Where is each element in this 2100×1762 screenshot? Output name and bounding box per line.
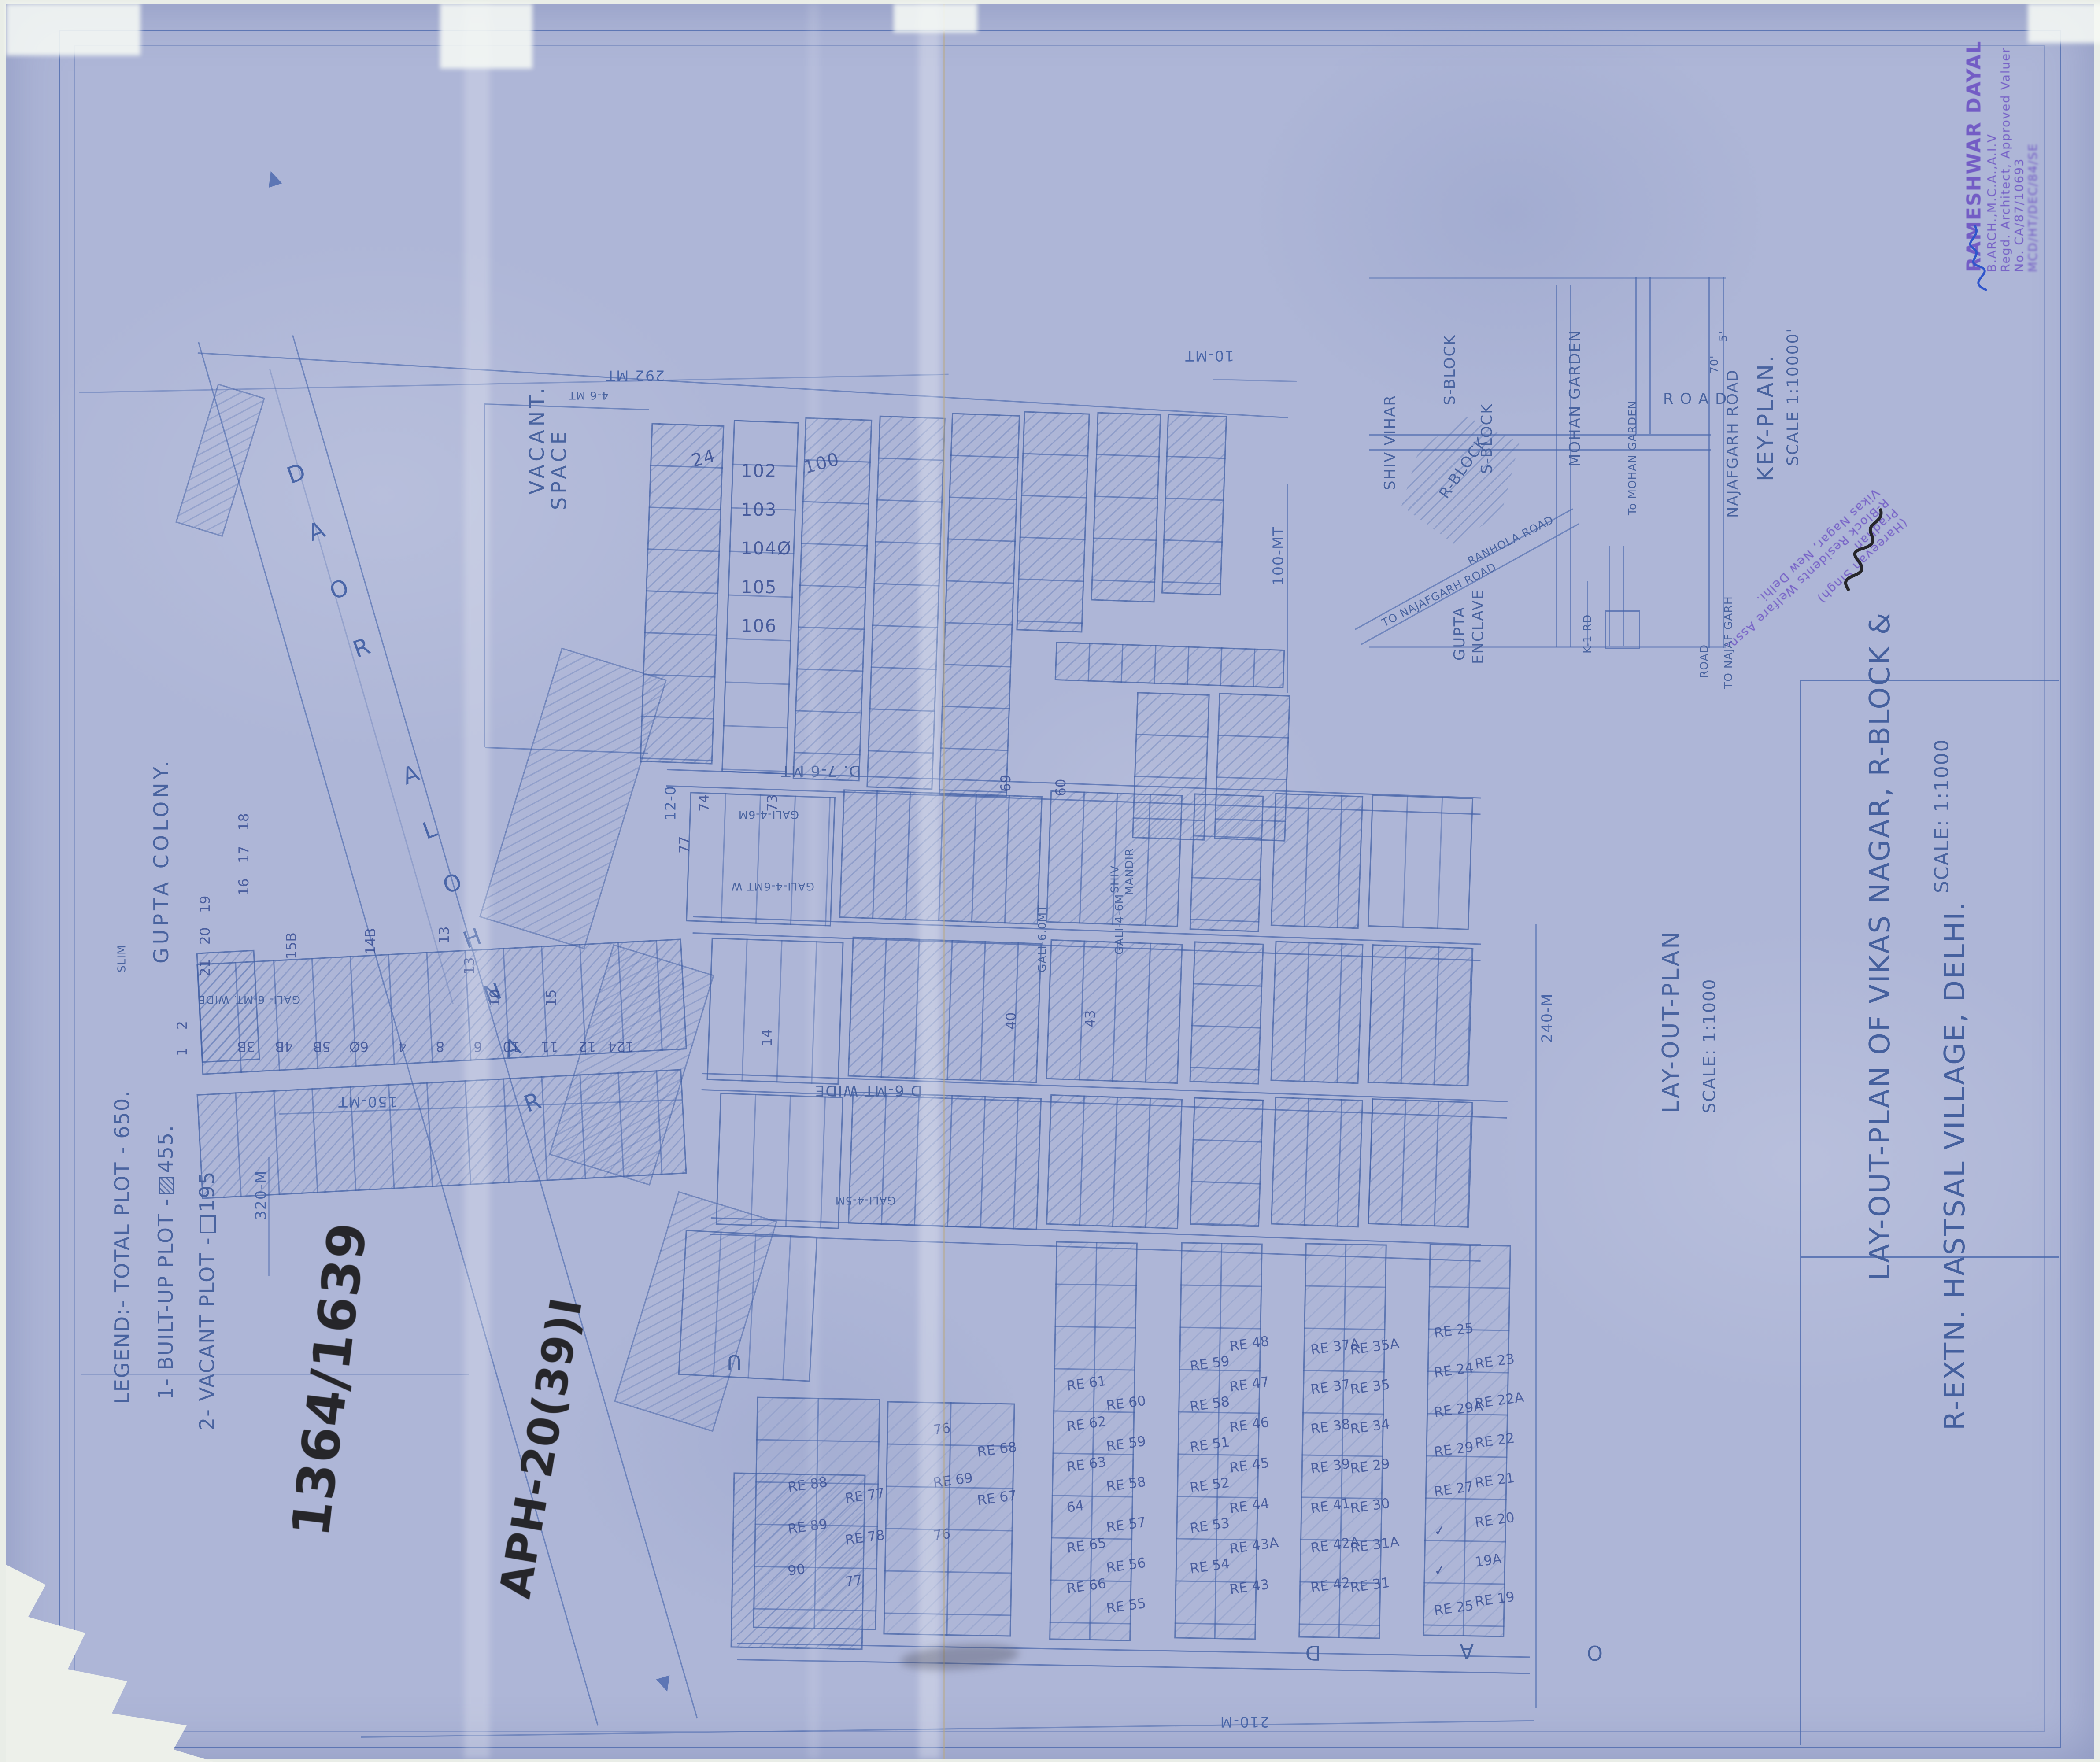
plot-strip bbox=[1046, 1094, 1183, 1229]
tape-artifact bbox=[6, 4, 140, 55]
title-block-divider-top bbox=[1801, 680, 2059, 681]
plot-strip bbox=[1368, 944, 1474, 1086]
plot-strip bbox=[1046, 939, 1183, 1084]
plot-strip bbox=[1189, 941, 1264, 1084]
plot-strip bbox=[1271, 1097, 1363, 1228]
title-column-rule bbox=[1800, 680, 1801, 1745]
plot-strip bbox=[1368, 1098, 1473, 1228]
plot-strip bbox=[793, 417, 873, 782]
plot-strip bbox=[1016, 411, 1090, 633]
plot-strip bbox=[1368, 794, 1473, 930]
plot-strip bbox=[706, 938, 843, 1085]
fold-shadow-line bbox=[943, 4, 945, 1759]
key-plan-box bbox=[1605, 610, 1640, 649]
tape-artifact bbox=[440, 4, 532, 69]
plan-line bbox=[1535, 924, 1537, 1708]
plot-strip bbox=[1190, 1097, 1264, 1227]
key-plan-line bbox=[1708, 277, 1710, 648]
key-plan-line bbox=[1649, 277, 1651, 434]
plot-strip bbox=[1190, 793, 1264, 932]
plan-line bbox=[81, 1374, 469, 1375]
plot-strip bbox=[1091, 412, 1161, 603]
vacant-swatch-icon bbox=[200, 1215, 216, 1233]
plot-strip bbox=[939, 413, 1020, 798]
key-plan-line bbox=[1369, 434, 1711, 436]
plot-strip bbox=[1161, 414, 1227, 595]
plot-strip bbox=[1271, 941, 1364, 1084]
tape-artifact bbox=[2028, 4, 2100, 43]
blueprint-scan: VACANT.SPACEGUPTA COLONY.SLIMSHIVMANDIRD… bbox=[0, 0, 2100, 1762]
architect-signature bbox=[1960, 217, 1995, 292]
plot-strip bbox=[883, 1401, 1015, 1637]
plot-strip bbox=[1271, 793, 1363, 929]
fold-artifact bbox=[919, 4, 940, 1759]
tape-artifact bbox=[894, 4, 977, 33]
key-plan-line bbox=[1369, 646, 1726, 648]
plot-strip bbox=[839, 789, 1043, 925]
title-block-divider bbox=[1801, 1256, 2059, 1258]
key-plan-line bbox=[1369, 277, 1726, 279]
builtup-swatch-icon bbox=[159, 1177, 174, 1194]
fold-artifact bbox=[464, 4, 490, 1759]
plan-line bbox=[1287, 484, 1288, 693]
plot-strip bbox=[1055, 642, 1285, 688]
key-plan-line bbox=[1556, 285, 1557, 647]
blueprint-sheet: VACANT.SPACEGUPTA COLONY.SLIMSHIVMANDIRD… bbox=[6, 4, 2094, 1759]
fold-artifact bbox=[808, 4, 819, 1759]
